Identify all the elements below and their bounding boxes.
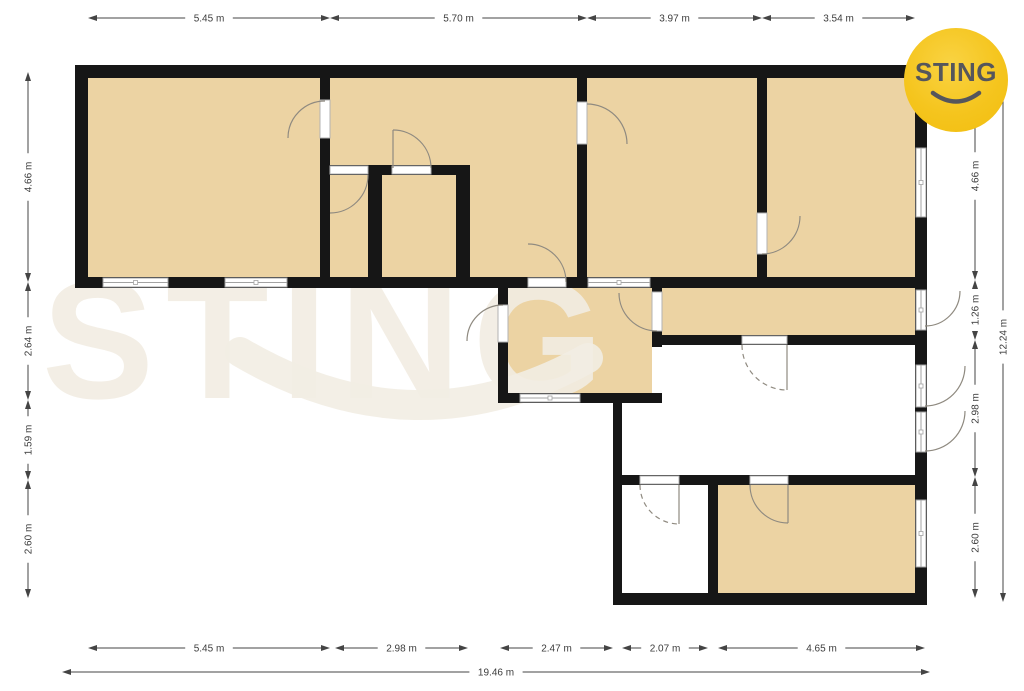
dimension-arrowhead bbox=[25, 589, 31, 598]
dimension-arrowhead bbox=[972, 468, 978, 477]
door-swing-arc bbox=[925, 291, 960, 326]
door-leaf bbox=[528, 278, 566, 287]
dimension-label: 4.66 m bbox=[971, 161, 982, 192]
window-tick bbox=[134, 281, 138, 285]
dimension-label: 5.70 m bbox=[443, 14, 474, 25]
dimension-arrowhead bbox=[88, 15, 97, 21]
dimension-label: 2.07 m bbox=[650, 644, 681, 655]
dimension-label: 2.98 m bbox=[971, 393, 982, 424]
dimension-arrowhead bbox=[1000, 593, 1006, 602]
room bbox=[662, 288, 915, 335]
window-tick bbox=[919, 532, 923, 536]
door-leaf bbox=[498, 305, 508, 342]
window-tick bbox=[254, 281, 258, 285]
floorplan-stage: STING5.45 m5.70 m3.97 m3.54 m4.66 m2.64 … bbox=[0, 0, 1024, 691]
door-leaf bbox=[640, 476, 679, 484]
dimension-arrowhead bbox=[25, 471, 31, 480]
dimension-arrowhead bbox=[699, 645, 708, 651]
window-tick bbox=[617, 281, 621, 285]
dimension-arrowhead bbox=[25, 273, 31, 282]
dimension-arrowhead bbox=[906, 15, 915, 21]
dimension-arrowhead bbox=[972, 477, 978, 486]
dimension-arrowhead bbox=[622, 645, 631, 651]
dimension-arrowhead bbox=[762, 15, 771, 21]
dimension-label: 4.65 m bbox=[806, 644, 837, 655]
dimension-arrowhead bbox=[25, 400, 31, 409]
dimension-arrowhead bbox=[972, 271, 978, 280]
wall bbox=[708, 475, 718, 605]
door-leaf bbox=[577, 102, 587, 144]
dimension-arrowhead bbox=[753, 15, 762, 21]
dimension-label: 5.45 m bbox=[194, 14, 225, 25]
dimension-label: 2.64 m bbox=[24, 326, 35, 357]
door-leaf bbox=[330, 166, 368, 174]
dimension-arrowhead bbox=[321, 645, 330, 651]
door-leaf bbox=[320, 100, 330, 138]
dimension-label: 2.60 m bbox=[24, 524, 35, 555]
dimension-label: 1.26 m bbox=[971, 295, 982, 326]
dimension-arrowhead bbox=[718, 645, 727, 651]
dimension-label: 2.98 m bbox=[386, 644, 417, 655]
dimension-arrowhead bbox=[587, 15, 596, 21]
dimension-label: 5.45 m bbox=[194, 644, 225, 655]
dimension-arrowhead bbox=[500, 645, 509, 651]
window-tick bbox=[548, 396, 552, 400]
dimension-arrowhead bbox=[921, 669, 930, 675]
dimension-arrowhead bbox=[321, 15, 330, 21]
wall bbox=[368, 165, 382, 288]
dimension-arrowhead bbox=[972, 589, 978, 598]
dimension-label: 2.47 m bbox=[541, 644, 572, 655]
wall bbox=[456, 165, 470, 288]
room bbox=[718, 485, 915, 593]
dimension-arrowhead bbox=[330, 15, 339, 21]
smile-icon bbox=[926, 87, 986, 111]
dimension-arrowhead bbox=[62, 669, 71, 675]
dimension-arrowhead bbox=[25, 480, 31, 489]
dimension-arrowhead bbox=[25, 72, 31, 81]
wall bbox=[613, 403, 622, 605]
dimension-arrowhead bbox=[25, 282, 31, 291]
dimension-label: 1.59 m bbox=[24, 425, 35, 456]
dimension-arrowhead bbox=[916, 645, 925, 651]
dimension-arrowhead bbox=[88, 645, 97, 651]
dimension-arrowhead bbox=[972, 331, 978, 340]
door-swing-arc bbox=[925, 411, 965, 451]
wall bbox=[75, 65, 927, 78]
dimension-arrowhead bbox=[972, 280, 978, 289]
door-leaf bbox=[652, 292, 662, 331]
dimension-arrowhead bbox=[25, 391, 31, 400]
sting-logo-text: STING bbox=[915, 59, 997, 85]
door-swing-arc bbox=[640, 485, 679, 524]
dimension-label: 19.46 m bbox=[478, 668, 514, 679]
dimension-arrowhead bbox=[604, 645, 613, 651]
door-swing-arc bbox=[742, 345, 787, 390]
dimension-arrowhead bbox=[459, 645, 468, 651]
dimension-label: 3.97 m bbox=[659, 14, 690, 25]
window-tick bbox=[919, 384, 923, 388]
wall bbox=[75, 65, 88, 288]
wall bbox=[320, 65, 330, 288]
floorplan-canvas: STING5.45 m5.70 m3.97 m3.54 m4.66 m2.64 … bbox=[0, 0, 1024, 691]
dimension-label: 12.24 m bbox=[999, 319, 1010, 355]
door-leaf bbox=[750, 476, 788, 484]
window-tick bbox=[919, 308, 923, 312]
wall bbox=[613, 593, 927, 605]
window-tick bbox=[919, 181, 923, 185]
dimension-label: 3.54 m bbox=[823, 14, 854, 25]
door-swing-arc bbox=[925, 366, 965, 406]
dimension-arrowhead bbox=[335, 645, 344, 651]
door-leaf bbox=[392, 166, 431, 174]
door-leaf bbox=[742, 336, 787, 344]
dimension-arrowhead bbox=[972, 340, 978, 349]
sting-logo: STING bbox=[904, 28, 1008, 132]
dimension-label: 4.66 m bbox=[24, 162, 35, 193]
dimension-arrowhead bbox=[578, 15, 587, 21]
wall bbox=[577, 65, 587, 288]
room bbox=[767, 78, 915, 277]
door-leaf bbox=[757, 213, 767, 254]
window-tick bbox=[919, 430, 923, 434]
dimension-label: 2.60 m bbox=[971, 522, 982, 553]
